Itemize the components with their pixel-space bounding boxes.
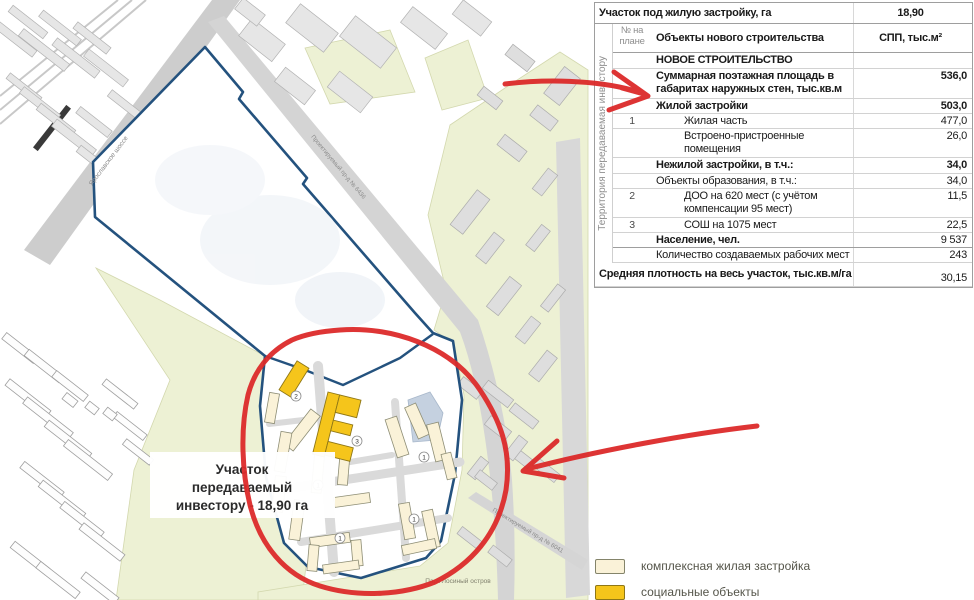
table-row: НОВОЕ СТРОИТЕЛЬСТВО bbox=[595, 53, 972, 69]
legend-swatch-0 bbox=[595, 559, 625, 574]
row-value bbox=[853, 53, 972, 68]
planning-slide: 2 3 1 1 1 1 Ярославское шоссе Проектируе… bbox=[0, 0, 974, 600]
row-label: Суммарная поэтажная площадь в габаритах … bbox=[652, 69, 853, 95]
row-num bbox=[612, 233, 652, 234]
table-row: Количество создаваемых рабочих мест243 bbox=[595, 248, 972, 263]
row-label: Объекты образования, в т.ч.: bbox=[652, 175, 853, 188]
row-value: 11,5 bbox=[853, 189, 972, 217]
row-label: Средняя плотность на весь участок, тыс.к… bbox=[595, 268, 853, 281]
table-row: Средняя плотность на весь участок, тыс.к… bbox=[595, 263, 972, 287]
table-row: Нежилой застройки, в т.ч.:34,0 bbox=[595, 158, 972, 174]
row-label: Количество создаваемых рабочих мест bbox=[652, 249, 853, 262]
legend-item: комплексная жилая застройка bbox=[595, 553, 810, 579]
row-num bbox=[612, 129, 652, 130]
row-label: НОВОЕ СТРОИТЕЛЬСТВО bbox=[652, 54, 853, 67]
badge-1: 1 bbox=[412, 517, 416, 524]
row-value: 243 bbox=[853, 248, 972, 262]
city-plan-map: 2 3 1 1 1 1 Ярославское шоссе Проектируе… bbox=[0, 0, 590, 600]
table-row: Суммарная поэтажная площадь в габаритах … bbox=[595, 69, 972, 99]
legend-swatch-1 bbox=[595, 585, 625, 600]
row-value: 26,0 bbox=[853, 129, 972, 157]
badge-1: 1 bbox=[422, 455, 426, 462]
row-label: ДОО на 620 мест (с учётом компенсации 95… bbox=[652, 189, 853, 215]
row-label: Жилой застройки bbox=[652, 100, 853, 113]
table-vertical-label: Территория передаваемая инвестору bbox=[595, 24, 613, 263]
table-rows: Участок под жилую застройку, га18,90№ на… bbox=[595, 3, 972, 287]
row-label: Население, чел. bbox=[652, 234, 853, 247]
row-num bbox=[612, 99, 652, 100]
table-row: Объекты образования, в т.ч.:34,0 bbox=[595, 174, 972, 189]
row-value: 503,0 bbox=[853, 99, 972, 113]
row-num bbox=[612, 174, 652, 175]
row-num bbox=[612, 69, 652, 70]
legend-label: социальные объекты bbox=[641, 585, 759, 599]
row-label: Участок под жилую застройку, га bbox=[595, 7, 853, 20]
row-label: Объекты нового строительства bbox=[652, 32, 853, 45]
row-value: 536,0 bbox=[853, 69, 972, 98]
row-label: Нежилой застройки, в т.ч.: bbox=[652, 159, 853, 172]
row-value: 22,5 bbox=[853, 218, 972, 232]
row-value: 34,0 bbox=[853, 174, 972, 188]
site-label-line1: Участок bbox=[216, 462, 269, 477]
legend-item: социальные объекты bbox=[595, 579, 810, 600]
table-row: Население, чел.9 537 bbox=[595, 233, 972, 248]
site-label-box: Участок передаваемый инвестору - 18,90 г… bbox=[150, 452, 335, 518]
row-num bbox=[612, 248, 652, 249]
table-row: 3СОШ на 1075 мест22,5 bbox=[595, 218, 972, 233]
row-num bbox=[612, 158, 652, 159]
row-value: 477,0 bbox=[853, 114, 972, 128]
badge-2: 2 bbox=[294, 394, 298, 401]
park-label: Парк Лосиный остров bbox=[425, 577, 491, 585]
table-row: № на планеОбъекты нового строительстваСП… bbox=[595, 24, 972, 53]
row-num: 2 bbox=[612, 189, 652, 203]
table-row: Встроено-пристроенные помещения26,0 bbox=[595, 129, 972, 158]
row-value: СПП, тыс.м² bbox=[853, 24, 972, 52]
row-num: № на плане bbox=[612, 24, 652, 47]
table-row: 2ДОО на 620 мест (с учётом компенсации 9… bbox=[595, 189, 972, 218]
row-num bbox=[612, 53, 652, 54]
row-label: Жилая часть bbox=[652, 115, 853, 128]
row-num: 1 bbox=[612, 114, 652, 128]
table-row: Жилой застройки503,0 bbox=[595, 99, 972, 114]
row-label: СОШ на 1075 мест bbox=[652, 219, 853, 232]
badge-3: 3 bbox=[355, 439, 359, 446]
construction-data-table: Территория передаваемая инвестору Участо… bbox=[594, 2, 973, 288]
row-label: Встроено-пристроенные помещения bbox=[652, 129, 853, 155]
row-value: 34,0 bbox=[853, 158, 972, 173]
badge-1: 1 bbox=[338, 536, 342, 543]
row-value: 18,90 bbox=[853, 3, 972, 23]
row-num: 3 bbox=[612, 218, 652, 232]
site-label-line2: передаваемый bbox=[192, 480, 292, 495]
row-value: 30,15 bbox=[853, 263, 972, 286]
site-label-line3: инвестору - 18,90 га bbox=[176, 498, 309, 513]
legend-label: комплексная жилая застройка bbox=[641, 559, 810, 573]
table-row: 1Жилая часть477,0 bbox=[595, 114, 972, 129]
row-value: 9 537 bbox=[853, 233, 972, 247]
map-legend: комплексная жилая застройка социальные о… bbox=[595, 553, 810, 600]
table-row: Участок под жилую застройку, га18,90 bbox=[595, 3, 972, 24]
